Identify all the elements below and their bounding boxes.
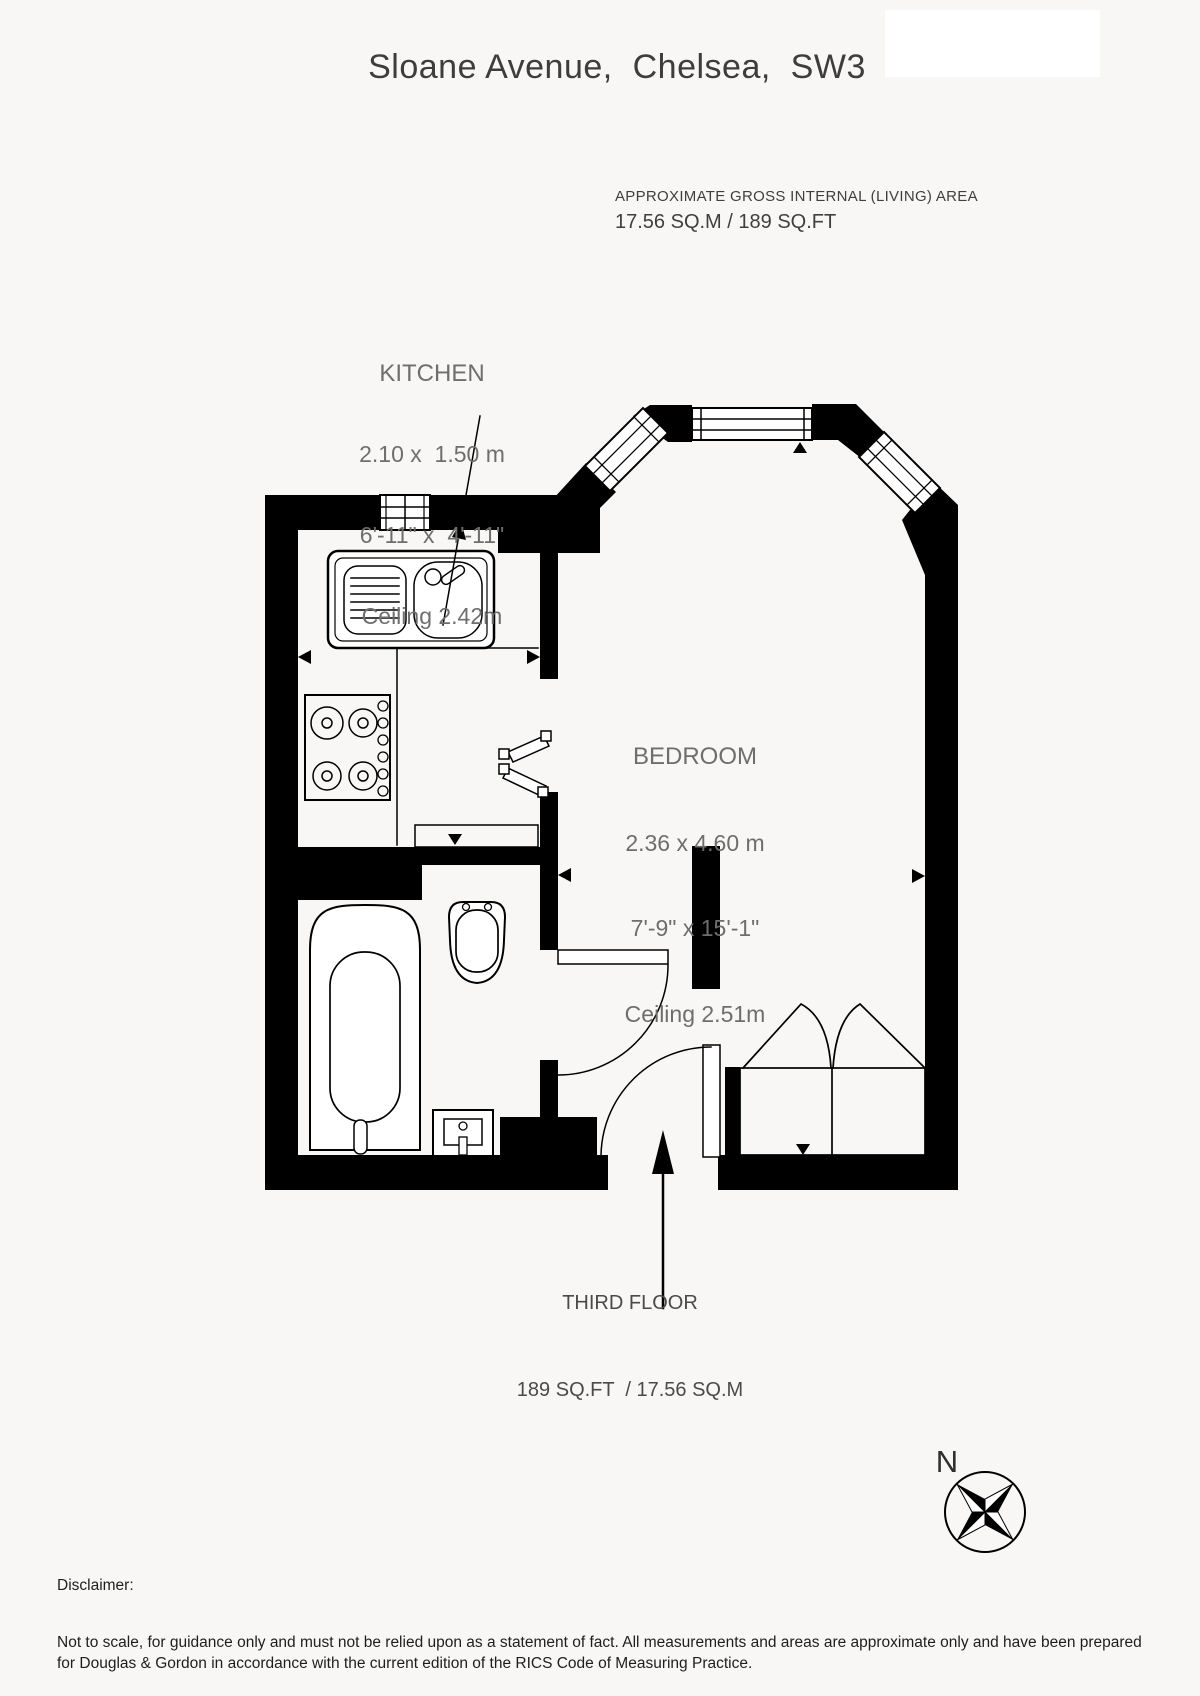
logo-placeholder <box>885 10 1100 77</box>
toilet <box>449 902 505 983</box>
compass-rose-icon <box>945 1472 1025 1552</box>
area-value: 17.56 SQ.M / 189 SQ.FT <box>615 211 836 234</box>
marker-kitchen-right-icon <box>527 650 540 664</box>
floor-name: THIRD FLOOR <box>517 1289 743 1318</box>
floor-area: 189 SQ.FT / 17.56 SQ.M <box>517 1376 743 1405</box>
kitchen-label-block: KITCHEN 2.10 x 1.50 m 6'-11" x 4'-11" Ce… <box>359 306 505 684</box>
bedroom-name: BEDROOM <box>625 743 766 772</box>
compass-north-label: N <box>936 1444 958 1480</box>
marker-kitchen-left-icon <box>298 650 311 664</box>
kitchen-ceiling: Ceiling 2.42m <box>359 603 505 630</box>
bedroom-ceiling: Ceiling 2.51m <box>625 1000 766 1029</box>
marker-bay-top-icon <box>793 442 807 453</box>
marker-bedroom-left-icon <box>558 868 571 882</box>
hob-knobs <box>378 701 388 796</box>
bathtub <box>310 905 420 1154</box>
wardrobe <box>740 1004 925 1155</box>
disclaimer-body: Not to scale, for guidance only and must… <box>57 1632 1152 1674</box>
floor-label-block: THIRD FLOOR 189 SQ.FT / 17.56 SQ.M <box>517 1231 743 1463</box>
bedroom-metric: 2.36 x 4.60 m <box>625 829 766 858</box>
marker-bedroom-right-icon <box>912 869 925 883</box>
bathtub-tap-icon <box>354 1120 367 1154</box>
kitchen-imperial: 6'-11" x 4'-11" <box>359 522 505 549</box>
bay-window <box>585 408 940 513</box>
bedroom-label-block: BEDROOM 2.36 x 4.60 m 7'-9" x 15'-1" Cei… <box>625 686 766 1085</box>
kitchen-name: KITCHEN <box>359 360 505 387</box>
page-title: Sloane Avenue, Chelsea, SW3 <box>368 48 866 87</box>
disclaimer-heading: Disclaimer: <box>57 1577 134 1595</box>
marker-wardrobe-bottom-icon <box>796 1144 810 1155</box>
wash-basin <box>433 1110 493 1156</box>
bedroom-imperial: 7'-9" x 15'-1" <box>625 914 766 943</box>
marker-counter-icon <box>448 834 462 845</box>
area-label: APPROXIMATE GROSS INTERNAL (LIVING) AREA <box>615 188 978 205</box>
kitchen-hob <box>305 695 390 800</box>
floorplan-page: Sloane Avenue, Chelsea, SW3 APPROXIMATE … <box>0 0 1200 1696</box>
kitchen-metric: 2.10 x 1.50 m <box>359 441 505 468</box>
kitchen-folding-door <box>499 731 551 797</box>
